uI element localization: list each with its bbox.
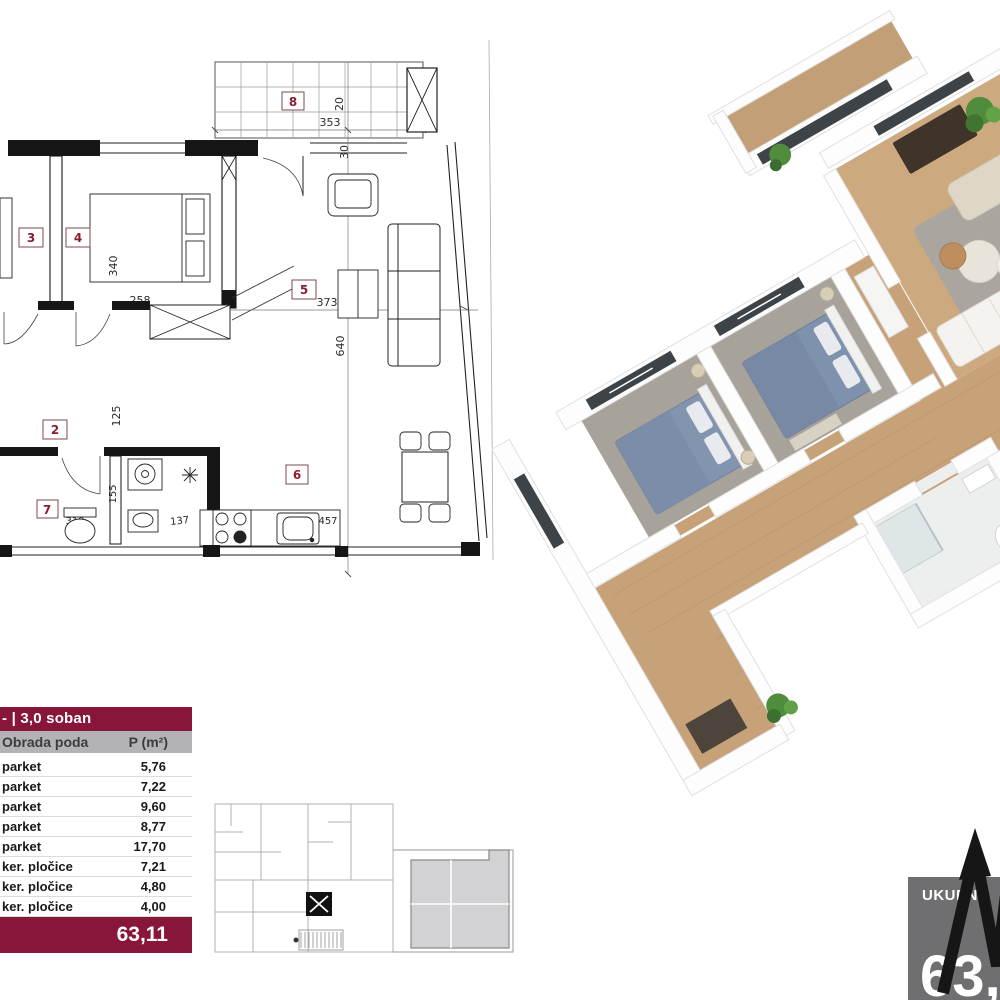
north-arrow-head xyxy=(959,828,991,880)
page: 8 353 20 30 xyxy=(0,0,1000,1000)
north-arrow: N xyxy=(0,0,1000,1000)
